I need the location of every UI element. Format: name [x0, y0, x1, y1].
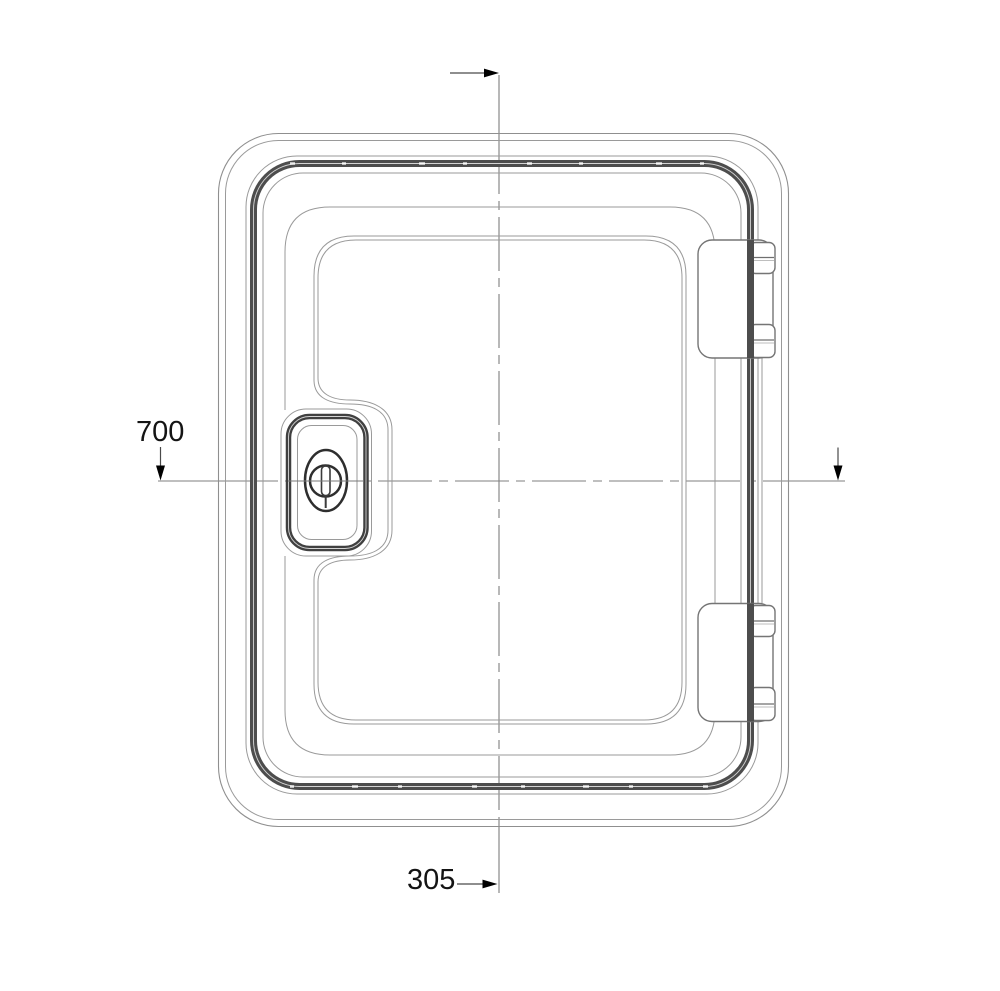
lock: [281, 409, 372, 556]
hinge-top: [698, 240, 775, 358]
technical-drawing-page: 700 305: [0, 0, 1000, 991]
hinge-bottom: [698, 604, 775, 722]
dimension-label-305: 305: [407, 864, 455, 896]
dimension-label-700: 700: [136, 416, 184, 448]
hinge-bottom-pin-line: [747, 604, 754, 722]
datum-arrow-top: [450, 69, 499, 78]
lock-plate: [289, 417, 367, 549]
inner-panel-outer-line: [314, 236, 686, 724]
hinge-top-pin-line: [747, 240, 754, 358]
dimension-305-arrowhead: [483, 880, 498, 889]
datum-top-arrowhead: [484, 69, 499, 78]
dimension-horizontal-position: 305: [407, 864, 498, 896]
service-door-drawing: 700 305: [0, 0, 1000, 991]
inner-panel-inner-line: [318, 240, 682, 720]
dimension-700-arrowhead: [156, 466, 165, 481]
dimension-vertical-position: 700: [136, 416, 184, 481]
datum-arrow-right: [834, 448, 843, 481]
datum-right-arrowhead: [834, 466, 843, 481]
door-inner-panel: [314, 236, 686, 724]
hinge-strap: [758, 357, 762, 604]
